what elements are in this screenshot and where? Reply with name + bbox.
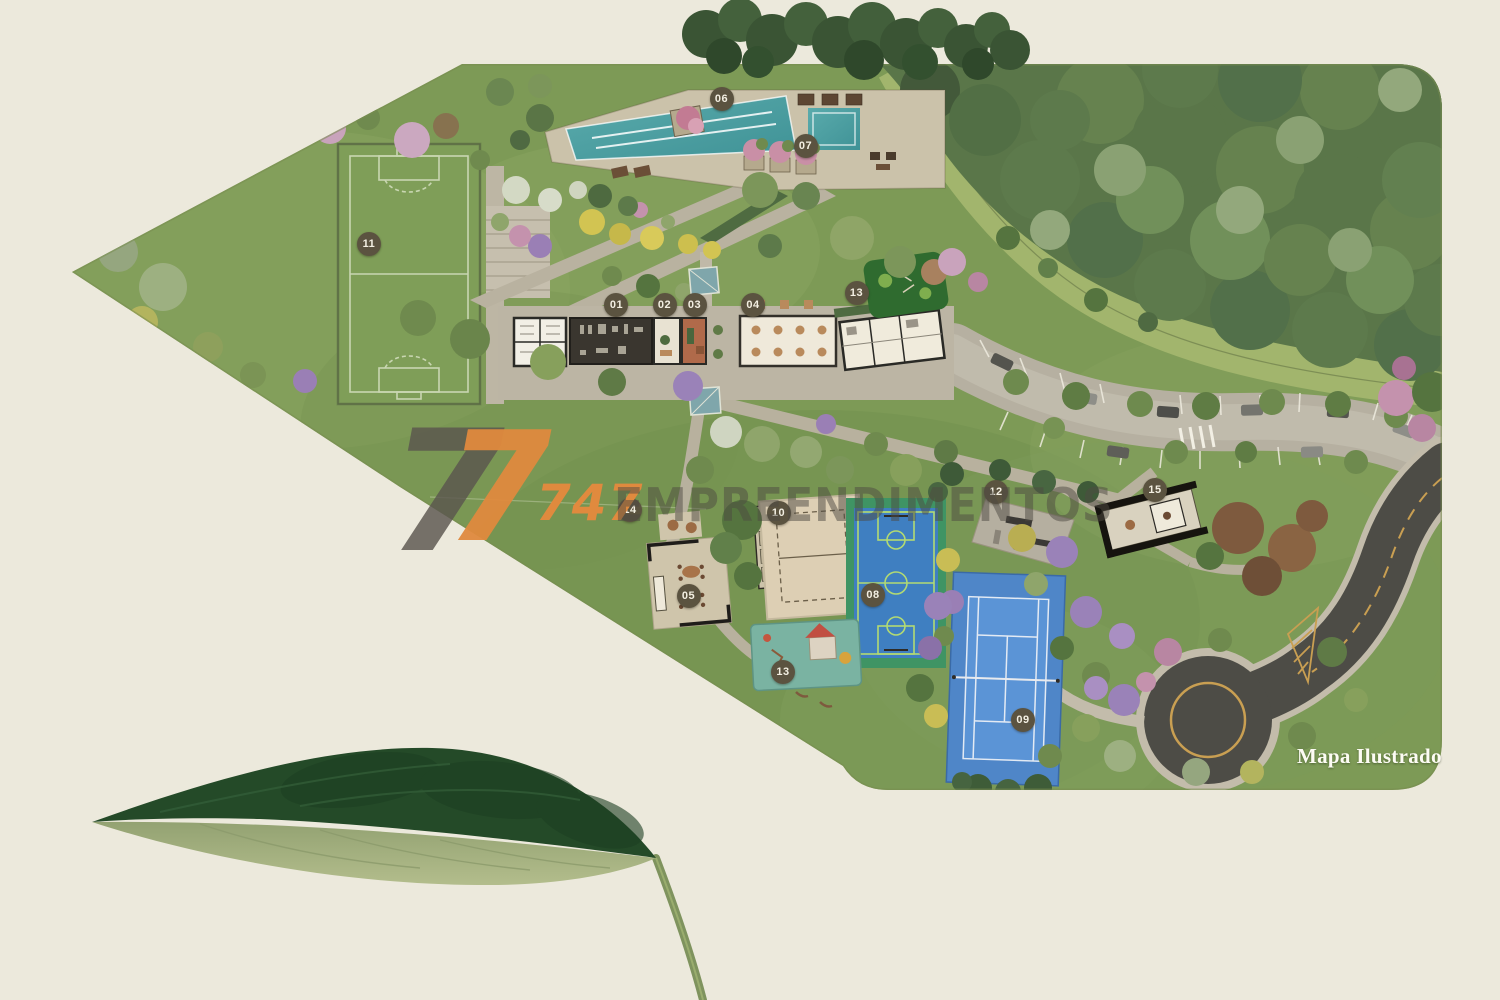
leaf-photo (92, 743, 703, 1000)
illustrated-site-map: 01020304050607080910111213131415 7 7 747… (0, 0, 1500, 1000)
top-overflow-trees (682, 0, 1030, 80)
soccer-field (338, 144, 480, 404)
playground (750, 619, 861, 691)
lounge-room (654, 318, 680, 364)
gym-building (570, 318, 652, 364)
site-map-illustration (0, 0, 1500, 1000)
deck-planters (743, 138, 820, 174)
map-caption-label: Mapa Ilustrado (1297, 744, 1442, 769)
games-room (682, 318, 706, 364)
